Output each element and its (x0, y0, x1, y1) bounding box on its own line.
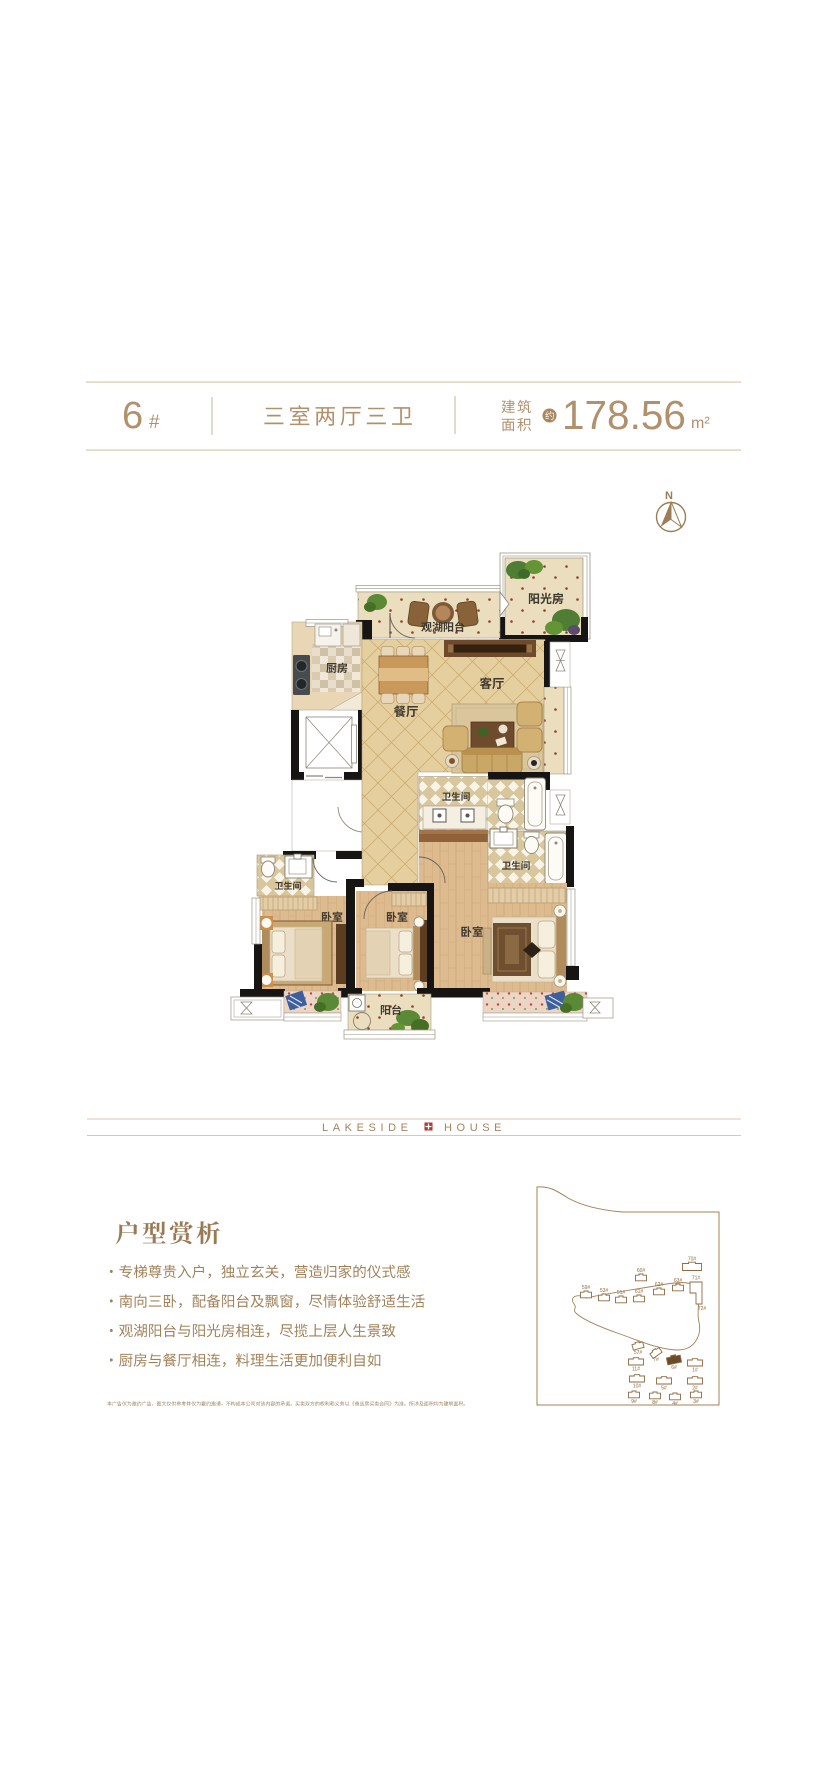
svg-text:3#: 3# (693, 1399, 699, 1405)
svg-text:m²: m² (691, 415, 710, 432)
svg-text:57#: 57# (634, 1350, 643, 1356)
svg-text:1#: 1# (692, 1368, 698, 1374)
svg-text:9#: 9# (631, 1399, 637, 1405)
svg-text:60#: 60# (637, 1268, 646, 1274)
svg-text:N: N (665, 490, 673, 502)
svg-text:#: # (149, 412, 160, 433)
svg-text:72#: 72# (698, 1306, 707, 1312)
svg-text:10#: 10# (633, 1384, 642, 1390)
svg-text:6#: 6# (671, 1365, 677, 1371)
svg-text:7#: 7# (653, 1357, 659, 1363)
svg-text:6: 6 (122, 395, 143, 437)
svg-text:4#: 4# (672, 1401, 678, 1407)
svg-text:59#: 59# (582, 1285, 591, 1291)
svg-text:63#: 63# (674, 1278, 683, 1284)
svg-text:61#: 61# (635, 1289, 644, 1295)
svg-text:53#: 53# (600, 1288, 609, 1294)
svg-text:8#: 8# (652, 1400, 658, 1406)
svg-text:51#: 51# (617, 1290, 626, 1296)
svg-text:5#: 5# (661, 1386, 667, 1392)
svg-text:178.56: 178.56 (562, 392, 686, 438)
svg-text:70#: 70# (688, 1257, 697, 1263)
svg-text:71#: 71# (692, 1276, 701, 1282)
svg-text:HOUSE: HOUSE (444, 1122, 506, 1134)
svg-text:62#: 62# (655, 1282, 664, 1288)
svg-text:11#: 11# (632, 1367, 640, 1373)
svg-text:LAKESIDE: LAKESIDE (322, 1122, 413, 1134)
